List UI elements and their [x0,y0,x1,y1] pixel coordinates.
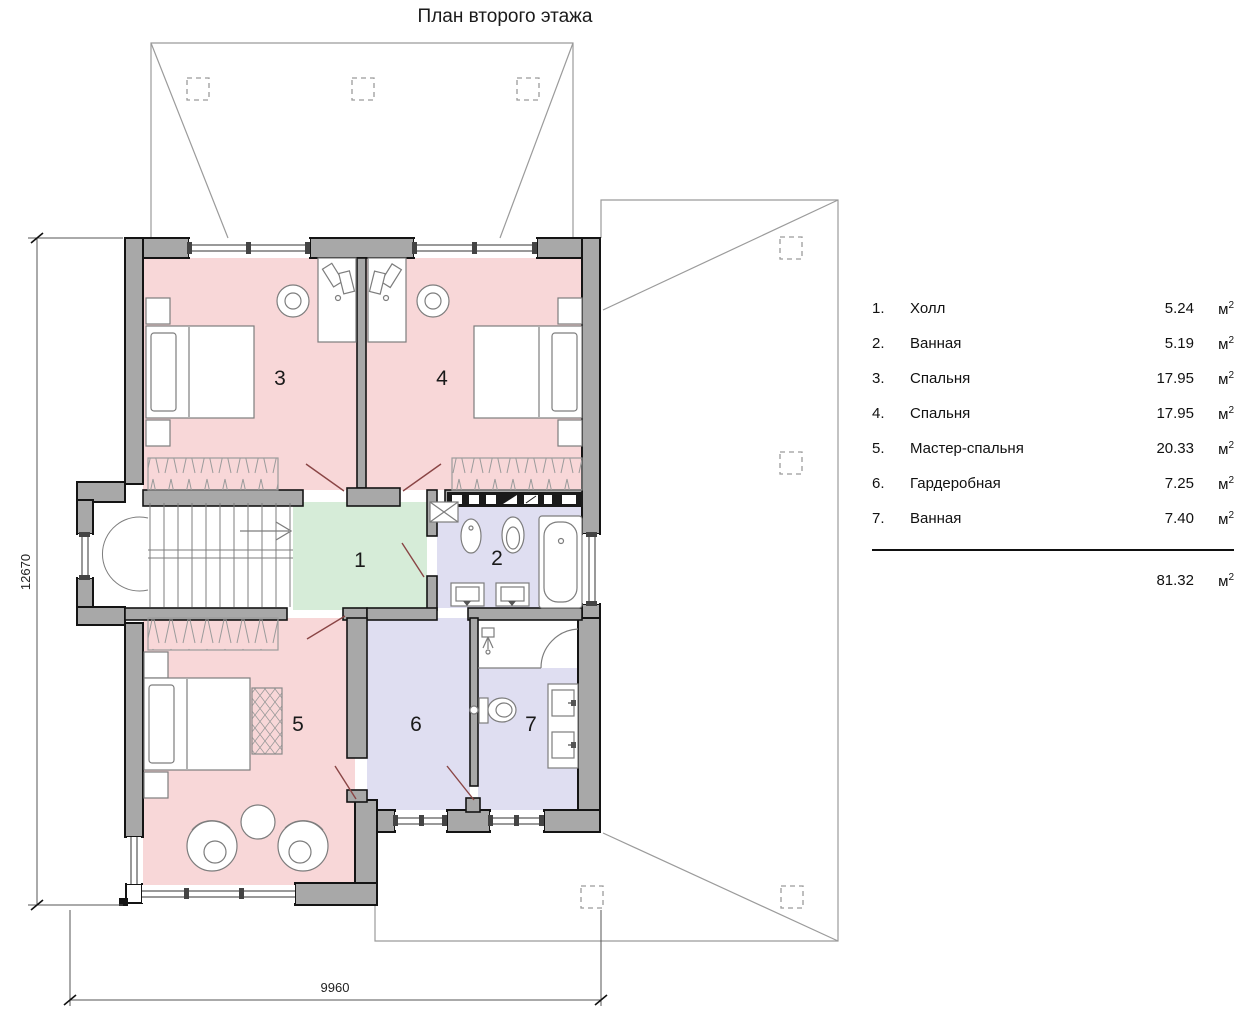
legend-room-name: Ванная [910,510,1128,527]
legend-room-name: Ванная [910,335,1128,352]
staircase [102,503,293,607]
pillow [149,685,174,763]
wardrobe-hatch [148,618,278,650]
legend-room-name: Спальня [910,370,1128,387]
floor-plan-page: План второго этажа [0,0,1249,1020]
bench-ottoman [252,688,282,754]
laundry-shelf [447,492,583,507]
corner-post [119,884,142,906]
window-top-left [187,239,310,257]
washbasin-cabinet [548,684,578,768]
legend-room-area: 5.24 [1128,300,1194,317]
legend-row: 4. Спальня 17.95 м2 [872,396,1234,431]
legend-room-number: 2. [872,335,910,352]
room-7-number: 7 [525,713,537,736]
pillow [552,333,577,411]
window-bottom-room5 [142,885,295,903]
legend-room-number: 6. [872,475,910,492]
legend-room-area: 7.40 [1128,510,1194,527]
legend-row: 1. Холл 5.24 м2 [872,291,1234,326]
legend-row: 7. Ванная 7.40 м2 [872,501,1234,536]
room-6-number: 6 [410,713,422,736]
window-stair-bump [78,532,92,580]
window-bottom-room6 [393,812,447,830]
window-right-bath [583,532,599,606]
legend-room-name: Мастер-спальня [910,440,1128,457]
legend-room-name: Спальня [910,405,1128,422]
room-1-number: 1 [354,549,366,572]
armchair [187,821,237,871]
legend-room-unit: м2 [1194,405,1234,423]
nightstand [146,298,170,324]
legend-total-unit: м2 [1194,572,1234,590]
legend-row: 6. Гардеробная 7.25 м2 [872,466,1234,501]
bathtub [539,516,582,608]
legend-room-unit: м2 [1194,370,1234,388]
room-2-number: 2 [491,547,503,570]
window-bottom-room7 [488,812,544,830]
nightstand [144,652,168,678]
legend-room-unit: м2 [1194,440,1234,458]
dimension-left [28,233,123,910]
room-5-number: 5 [292,713,304,736]
legend-room-number: 4. [872,405,910,422]
dimension-bottom-label: 9960 [321,980,350,995]
legend-room-number: 5. [872,440,910,457]
legend-room-unit: м2 [1194,335,1234,353]
legend-room-name: Гардеробная [910,475,1128,492]
room-legend: 1. Холл 5.24 м2 2. Ванная 5.19 м2 3. Спа… [872,291,1234,536]
legend-room-number: 7. [872,510,910,527]
vent-shaft [430,502,458,522]
legend-room-unit: м2 [1194,475,1234,493]
legend-room-number: 1. [872,300,910,317]
legend-row: 2. Ванная 5.19 м2 [872,326,1234,361]
window-top-right [412,239,537,257]
round-table [241,805,275,839]
legend-room-area: 20.33 [1128,440,1194,457]
nightstand [146,420,170,446]
legend-room-area: 5.19 [1128,335,1194,352]
wardrobe-hatch [148,458,278,490]
window-left-room5 [127,837,141,884]
dimension-left-label: 12670 [18,554,33,590]
legend-room-unit: м2 [1194,510,1234,528]
legend-room-name: Холл [910,300,1128,317]
room-3-number: 3 [274,367,286,390]
legend-row: 3. Спальня 17.95 м2 [872,361,1234,396]
nightstand [144,772,168,798]
nightstand [558,298,582,324]
legend-total-row: 81.32 м2 [872,572,1234,590]
legend-room-unit: м2 [1194,300,1234,318]
armchair [278,821,328,871]
legend-row: 5. Мастер-спальня 20.33 м2 [872,431,1234,466]
wardrobe-hatch [452,458,582,490]
nightstand [558,420,582,446]
bidet [461,519,481,553]
pillow [151,333,176,411]
shower [478,628,578,668]
legend-room-number: 3. [872,370,910,387]
legend-total-area: 81.32 [1128,572,1194,590]
room-4-number: 4 [436,367,448,390]
legend-room-area: 7.25 [1128,475,1194,492]
legend-room-area: 17.95 [1128,405,1194,422]
legend-divider [872,549,1234,551]
legend-room-area: 17.95 [1128,370,1194,387]
